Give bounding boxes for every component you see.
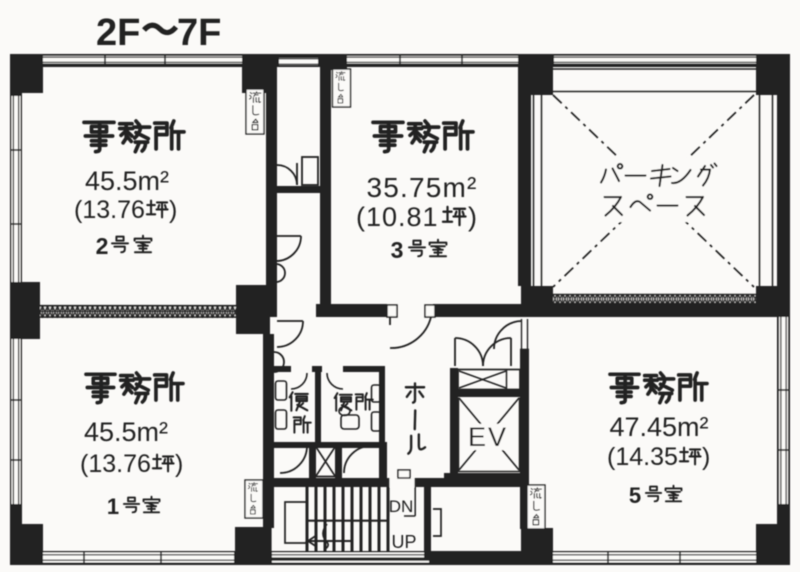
svg-text:1: 1: [107, 494, 119, 519]
svg-text:2: 2: [96, 233, 109, 259]
svg-text:5: 5: [629, 483, 641, 508]
svg-text:DN: DN: [389, 497, 414, 516]
svg-text:(13.76: (13.76: [74, 196, 145, 224]
svg-text:(14.35: (14.35: [607, 443, 678, 471]
svg-text:(13.76: (13.76: [80, 450, 151, 478]
svg-text:EV: EV: [468, 422, 508, 452]
svg-text:(10.81: (10.81: [356, 202, 439, 232]
svg-text:): ): [468, 202, 477, 232]
svg-text:47.45m²: 47.45m²: [609, 412, 708, 442]
svg-text:3: 3: [391, 237, 404, 263]
svg-text:45.5m²: 45.5m²: [84, 417, 168, 447]
svg-text:7F: 7F: [177, 12, 221, 54]
svg-text:2F: 2F: [96, 12, 140, 54]
svg-text:45.5m²: 45.5m²: [85, 166, 169, 196]
svg-text:): ): [175, 450, 183, 478]
svg-text:35.75m²: 35.75m²: [366, 172, 477, 203]
svg-text:): ): [702, 443, 710, 471]
svg-text:UP: UP: [391, 532, 416, 552]
svg-text:): ): [169, 196, 177, 224]
